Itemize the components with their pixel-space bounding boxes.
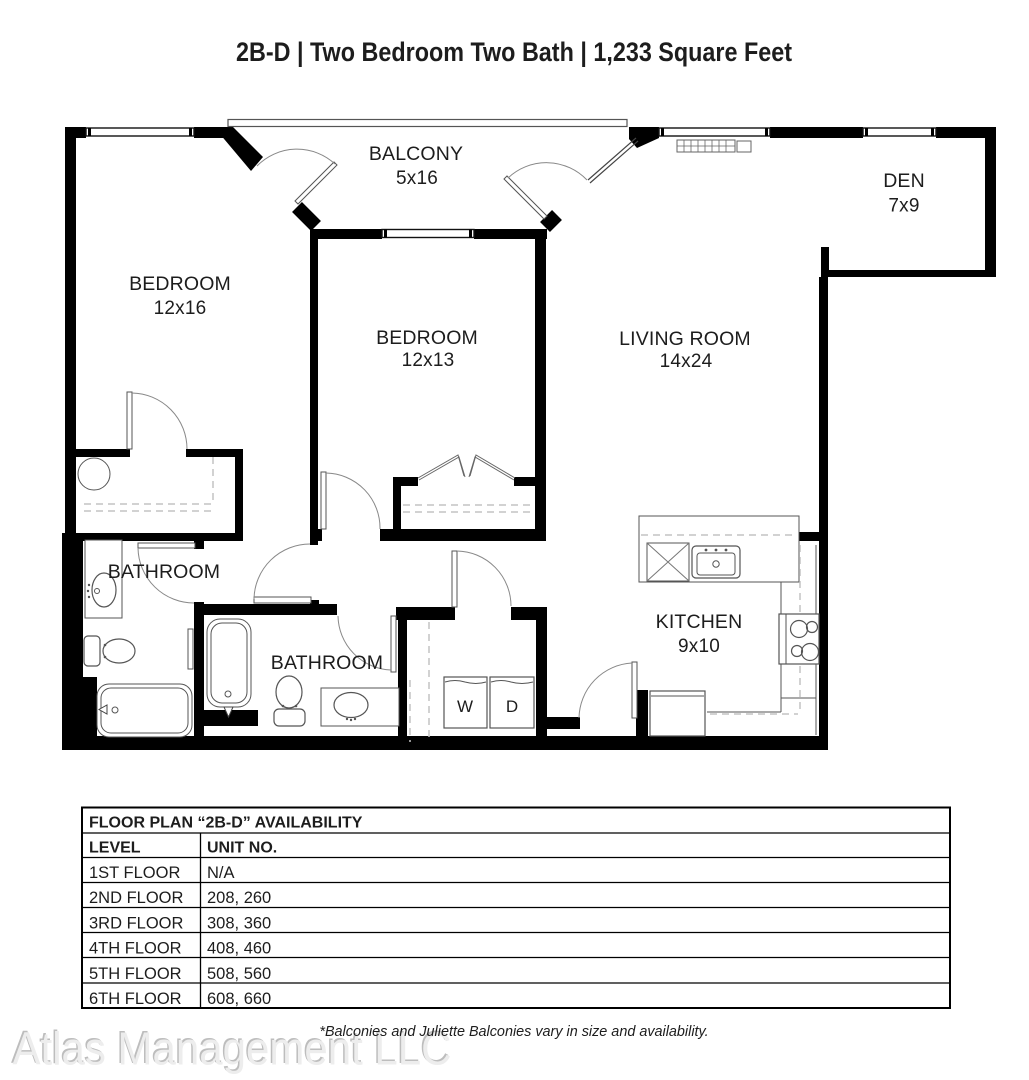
svg-text:508, 560: 508, 560 xyxy=(207,965,271,983)
svg-text:BEDROOM: BEDROOM xyxy=(376,327,478,349)
svg-text:KITCHEN: KITCHEN xyxy=(656,611,743,633)
svg-text:2ND FLOOR: 2ND FLOOR xyxy=(89,889,184,907)
svg-text:FLOOR PLAN “2B-D” AVAILABILITY: FLOOR PLAN “2B-D” AVAILABILITY xyxy=(89,815,363,832)
svg-text:14x24: 14x24 xyxy=(660,351,713,372)
svg-text:BEDROOM: BEDROOM xyxy=(129,273,231,295)
svg-text:LIVING ROOM: LIVING ROOM xyxy=(619,328,751,350)
svg-text:208, 260: 208, 260 xyxy=(207,889,271,907)
svg-text:BATHROOM: BATHROOM xyxy=(271,652,383,674)
svg-text:2B-D | Two Bedroom Two Bath |: 2B-D | Two Bedroom Two Bath | 1,233 Squa… xyxy=(236,37,792,67)
svg-text:1ST FLOOR: 1ST FLOOR xyxy=(89,864,180,882)
svg-text:9x10: 9x10 xyxy=(678,636,720,657)
svg-text:608, 660: 608, 660 xyxy=(207,990,271,1008)
svg-text:UNIT NO.: UNIT NO. xyxy=(207,840,277,857)
svg-text:12x13: 12x13 xyxy=(402,350,455,371)
svg-text:7x9: 7x9 xyxy=(888,196,919,217)
svg-text:D: D xyxy=(506,697,518,716)
svg-text:5x16: 5x16 xyxy=(396,168,438,189)
svg-text:BATHROOM: BATHROOM xyxy=(108,561,220,583)
svg-text:BALCONY: BALCONY xyxy=(369,143,463,165)
svg-text:W: W xyxy=(457,697,473,716)
svg-text:DEN: DEN xyxy=(883,170,925,192)
svg-text:408, 460: 408, 460 xyxy=(207,940,271,958)
svg-text:*Balconies and Juliette Balcon: *Balconies and Juliette Balconies vary i… xyxy=(319,1024,708,1040)
svg-text:308, 360: 308, 360 xyxy=(207,914,271,932)
svg-text:6TH FLOOR: 6TH FLOOR xyxy=(89,990,182,1008)
svg-text:4TH FLOOR: 4TH FLOOR xyxy=(89,940,182,958)
svg-text:3RD FLOOR: 3RD FLOOR xyxy=(89,914,184,932)
svg-text:LEVEL: LEVEL xyxy=(89,840,141,857)
svg-text:5TH FLOOR: 5TH FLOOR xyxy=(89,965,182,983)
svg-text:N/A: N/A xyxy=(207,864,235,882)
svg-text:12x16: 12x16 xyxy=(154,298,207,319)
